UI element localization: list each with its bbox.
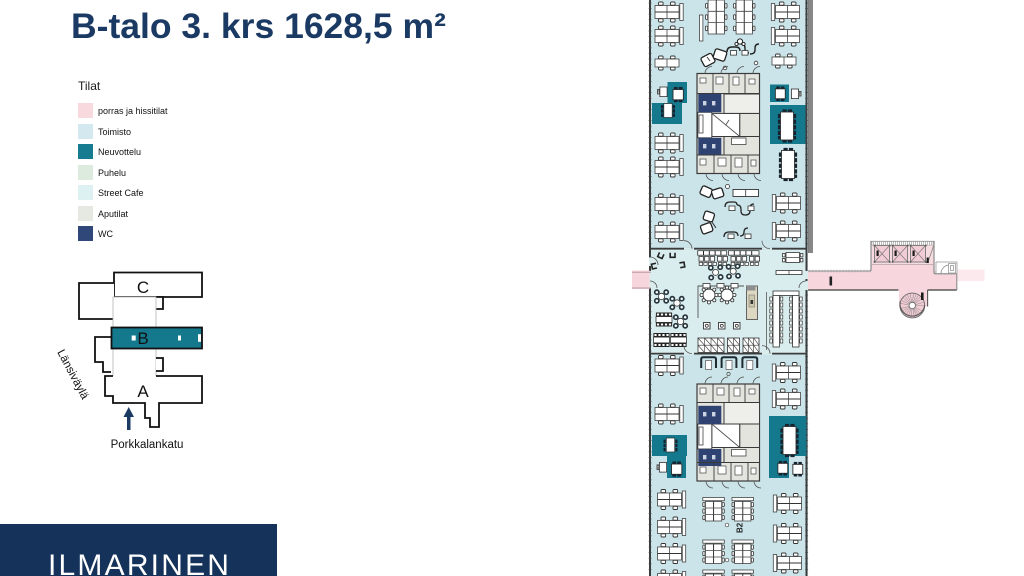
svg-text:B2: B2 <box>736 522 745 533</box>
